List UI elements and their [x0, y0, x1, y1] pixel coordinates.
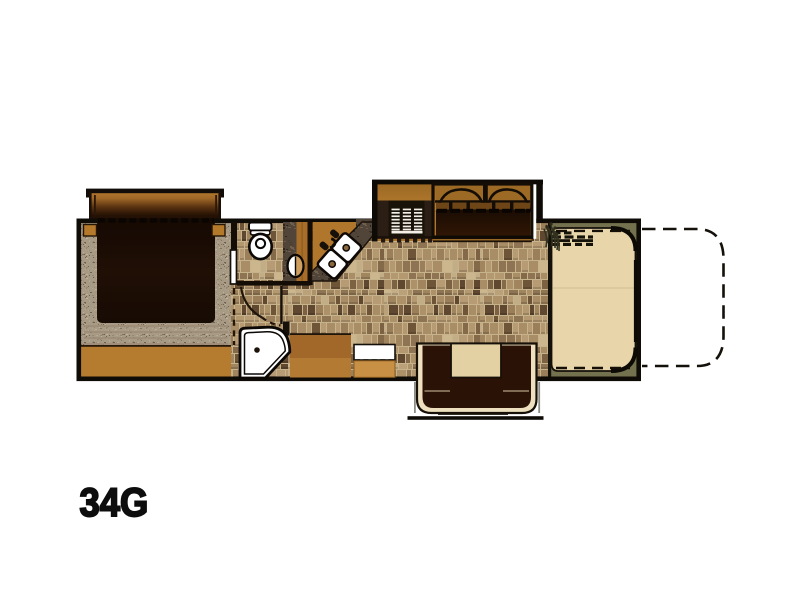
- svg-text:34G: 34G: [80, 480, 149, 525]
